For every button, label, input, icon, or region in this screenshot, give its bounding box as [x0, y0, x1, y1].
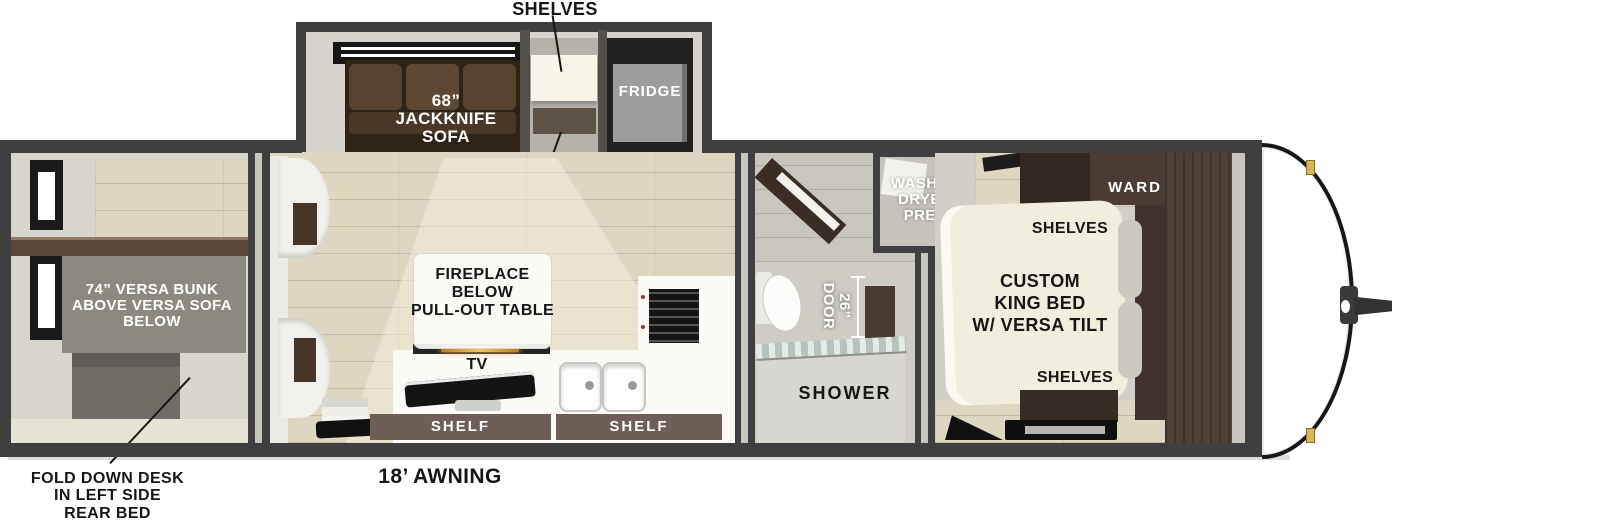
wardrobe-corner-block [1020, 152, 1090, 207]
stove-knob [641, 325, 645, 329]
window-pane [341, 47, 515, 50]
cap-clip [1306, 428, 1315, 443]
hitch-arm [1354, 295, 1392, 317]
bunk-desk-bar [11, 237, 248, 256]
shelf-left-label: SHELF [370, 419, 551, 435]
bottom-wall [0, 443, 1262, 457]
entry-mat [316, 418, 379, 438]
bed-label: CUSTOM KING BED W/ VERSA TILT [955, 271, 1125, 337]
sofa-label: 68” JACKKNIFE SOFA [386, 92, 506, 146]
nightstand [1020, 390, 1118, 422]
desk-callout-label: FOLD DOWN DESK IN LEFT SIDE REAR BED [15, 470, 200, 522]
cabinet-panel [294, 338, 316, 382]
bedroom-front-wall-strip [1232, 152, 1245, 443]
fireplace-label: FIREPLACE BELOW PULL-OUT TABLE [405, 266, 560, 320]
wall-divider-edge [262, 152, 270, 443]
fridge-label: FRIDGE [613, 84, 687, 100]
rear-bedroom-floor [95, 160, 248, 238]
tv-label: TV [455, 357, 499, 374]
wall-divider-edge [248, 152, 255, 443]
awning-label: 18’ AWNING [360, 466, 520, 488]
top-wall-left [0, 140, 302, 153]
closet-left-wall [520, 30, 530, 152]
fridge [613, 64, 687, 142]
kitchen-sink-bowl [559, 362, 602, 412]
cap-clip [1306, 160, 1315, 175]
door-measure-label: 26” DOOR [820, 266, 852, 346]
bath-vanity [865, 286, 895, 338]
right-wall [1245, 140, 1262, 457]
window-pane [341, 54, 515, 57]
bench-slat [1025, 426, 1105, 434]
hitch-coupler [1341, 300, 1350, 313]
shelves-bottom-label: SHELVES [1025, 370, 1125, 387]
shelves-callout-label: SHELVES [505, 0, 605, 19]
wall-divider-edge [748, 152, 755, 443]
stove-knob [641, 295, 645, 299]
closet-lower-shelf [533, 108, 596, 134]
shower-label: SHOWER [780, 384, 910, 403]
floorplan-canvas: 68” JACKKNIFE SOFA FRIDGE SHELVES CLOSET… [0, 0, 1600, 527]
tv-base [455, 400, 501, 411]
versa-sofa-below [72, 353, 180, 419]
cabinet-panel [293, 203, 317, 245]
stove [644, 284, 704, 348]
ward-label: WARD [1095, 180, 1175, 196]
door-measure-cap [851, 276, 865, 278]
closet-right-wall [598, 30, 607, 152]
shelf-right-label: SHELF [556, 419, 722, 435]
bench [1005, 420, 1117, 440]
window-pane [38, 172, 55, 220]
closet-shelf [531, 55, 597, 101]
wardrobe-right-column [1165, 152, 1232, 443]
door-measure-line [857, 277, 859, 337]
kitchen-sink-bowl [602, 362, 646, 412]
faucet-dot [585, 381, 594, 390]
left-wall [0, 140, 11, 457]
wall-divider-edge [735, 152, 741, 443]
bunk-window-upper [30, 160, 63, 230]
faucet-dot [628, 381, 637, 390]
shelves-top-label: SHELVES [1020, 221, 1120, 238]
bunk-label: 74” VERSA BUNK ABOVE VERSA SOFA BELOW [47, 282, 257, 330]
top-wall-right [702, 140, 1262, 153]
